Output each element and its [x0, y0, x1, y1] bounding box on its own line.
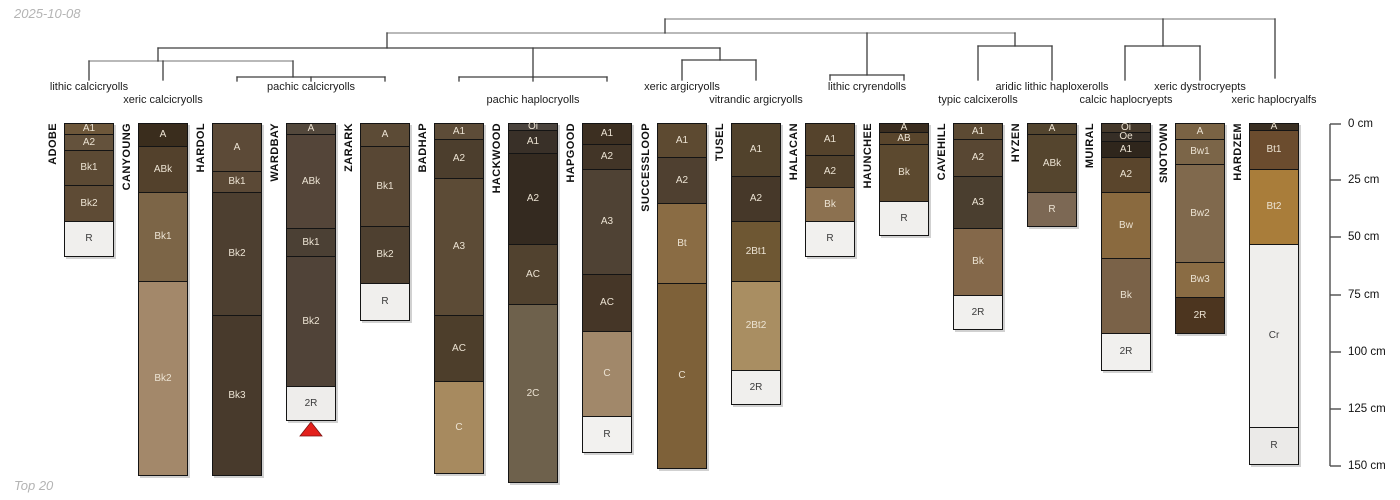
horizon-muiral-bk: Bk [1101, 258, 1151, 334]
horizon-cavehill-bk: Bk [953, 228, 1003, 296]
horizon-halacan-a2: A2 [805, 155, 855, 188]
profile-column-wardbay: AABkBk1Bk22R [286, 123, 336, 421]
taxon-label: vitrandic argicryolls [641, 94, 871, 106]
horizon-wardbay-bk2: Bk2 [286, 256, 336, 387]
profile-column-canyoung: AABkBk1Bk2 [138, 123, 188, 476]
horizon-halacan-r: R [805, 221, 855, 257]
horizon-wardbay-bk1: Bk1 [286, 228, 336, 257]
profile-name-halacan: HALACAN [787, 123, 802, 180]
profile-name-hardzem: HARDZEM [1231, 123, 1246, 181]
taxon-label: xeric dystrocryepts [1085, 81, 1315, 93]
horizon-muiral-2r: 2R [1101, 333, 1151, 371]
horizon-badhap-ac: AC [434, 315, 484, 382]
horizon-muiral-a1: A1 [1101, 141, 1151, 158]
profile-column-snotown: ABw1Bw2Bw32R [1175, 123, 1225, 334]
profile-name-wardbay: WARDBAY [268, 123, 283, 182]
horizon-hackwood-ac: AC [508, 244, 558, 305]
soil-profile-dendrogram-figure: 2025-10-08 Top 20 lithic calcicryollsxer… [0, 0, 1400, 500]
depth-axis-label: 75 cm [1348, 289, 1379, 301]
profile-name-successloop: SUCCESSLOOP [639, 123, 654, 212]
horizon-hackwood-2c: 2C [508, 304, 558, 483]
horizon-hapgood-a3: A3 [582, 169, 632, 275]
profile-name-badhap: BADHAP [416, 123, 431, 172]
horizon-cavehill-2r: 2R [953, 295, 1003, 330]
horizon-badhap-a1: A1 [434, 123, 484, 140]
horizon-successloop-bt: Bt [657, 203, 707, 284]
horizon-hapgood-a1: A1 [582, 123, 632, 145]
horizon-hapgood-a2: A2 [582, 144, 632, 170]
horizon-hardol-a: A [212, 123, 262, 172]
horizon-adobe-bk2: Bk2 [64, 185, 114, 222]
horizon-badhap-a2: A2 [434, 139, 484, 179]
horizon-tusel-2bt2: 2Bt2 [731, 281, 781, 371]
horizon-hardol-bk1: Bk1 [212, 171, 262, 193]
depth-axis-label: 50 cm [1348, 231, 1379, 243]
profile-column-muiral: OiOeA1A2BwBk2R [1101, 123, 1151, 371]
profile-column-haunchee: AABBkR [879, 123, 929, 236]
horizon-hardzem-bt1: Bt1 [1249, 130, 1299, 170]
profile-column-hardol: ABk1Bk2Bk3 [212, 123, 262, 476]
date-label: 2025-10-08 [14, 6, 81, 21]
horizon-adobe-r: R [64, 221, 114, 257]
horizon-snotown-2r: 2R [1175, 297, 1225, 334]
horizon-badhap-a3: A3 [434, 178, 484, 316]
horizon-muiral-a2: A2 [1101, 157, 1151, 193]
taxon-label: pachic calcicryolls [196, 81, 426, 93]
horizon-hardol-bk2: Bk2 [212, 192, 262, 316]
depth-axis-label: 25 cm [1348, 174, 1379, 186]
profile-column-hardzem: ABt1Bt2CrR [1249, 123, 1299, 465]
taxon-label: pachic haplocryolls [418, 94, 648, 106]
horizon-hackwood-a2: A2 [508, 153, 558, 245]
profile-name-haunchee: HAUNCHEE [861, 123, 876, 189]
profile-column-hackwood: OiA1A2AC2C [508, 123, 558, 483]
red-triangle-marker [300, 422, 322, 436]
horizon-tusel-a1: A1 [731, 123, 781, 177]
horizon-haunchee-bk: Bk [879, 144, 929, 202]
horizon-canyoung-a: A [138, 123, 188, 147]
horizon-hapgood-c: C [582, 331, 632, 417]
profile-name-hyzen: HYZEN [1009, 123, 1024, 162]
taxon-label: xeric haplocryalfs [1159, 94, 1389, 106]
profile-column-cavehill: A1A2A3Bk2R [953, 123, 1003, 330]
depth-axis-label: 125 cm [1348, 403, 1386, 415]
horizon-adobe-a2: A2 [64, 134, 114, 151]
horizon-zarark-bk2: Bk2 [360, 226, 410, 284]
horizon-snotown-a: A [1175, 123, 1225, 140]
profile-name-hapgood: HAPGOOD [564, 123, 579, 183]
horizon-canyoung-abk: ABk [138, 146, 188, 193]
horizon-muiral-bw: Bw [1101, 192, 1151, 259]
profile-column-adobe: A1A2Bk1Bk2R [64, 123, 114, 257]
profile-name-canyoung: CANYOUNG [120, 123, 135, 190]
horizon-badhap-c: C [434, 381, 484, 474]
horizon-snotown-bw2: Bw2 [1175, 164, 1225, 263]
horizon-hyzen-r: R [1027, 192, 1077, 227]
horizon-haunchee-r: R [879, 201, 929, 236]
horizon-hardzem-bt2: Bt2 [1249, 169, 1299, 245]
horizon-cavehill-a2: A2 [953, 139, 1003, 177]
horizon-successloop-a2: A2 [657, 157, 707, 204]
horizon-successloop-c: C [657, 283, 707, 469]
profile-column-zarark: ABk1Bk2R [360, 123, 410, 321]
profile-name-hardol: HARDOL [194, 123, 209, 172]
profile-column-hyzen: AABkR [1027, 123, 1077, 227]
taxon-label: lithic calcicryolls [0, 81, 204, 93]
profile-name-muiral: MUIRAL [1083, 123, 1098, 168]
horizon-cavehill-a1: A1 [953, 123, 1003, 140]
horizon-snotown-bw3: Bw3 [1175, 262, 1225, 298]
depth-axis-label: 150 cm [1348, 460, 1386, 472]
horizon-tusel-2r: 2R [731, 370, 781, 405]
horizon-canyoung-bk1: Bk1 [138, 192, 188, 282]
profile-name-snotown: SNOTOWN [1157, 123, 1172, 183]
horizon-hardol-bk3: Bk3 [212, 315, 262, 476]
horizon-zarark-r: R [360, 283, 410, 321]
horizon-halacan-a1: A1 [805, 123, 855, 156]
horizon-wardbay-2r: 2R [286, 386, 336, 421]
horizon-hapgood-ac: AC [582, 274, 632, 332]
horizon-hyzen-abk: ABk [1027, 134, 1077, 193]
horizon-hardzem-cr: Cr [1249, 244, 1299, 428]
depth-axis-label: 0 cm [1348, 118, 1373, 130]
horizon-tusel-2bt1: 2Bt1 [731, 221, 781, 282]
horizon-cavehill-a3: A3 [953, 176, 1003, 229]
horizon-successloop-a1: A1 [657, 123, 707, 158]
horizon-zarark-a: A [360, 123, 410, 147]
profile-name-adobe: ADOBE [46, 123, 61, 165]
horizon-hardzem-r: R [1249, 427, 1299, 465]
profile-column-tusel: A1A22Bt12Bt22R [731, 123, 781, 405]
horizon-zarark-bk1: Bk1 [360, 146, 410, 227]
footer-label: Top 20 [14, 478, 53, 493]
horizon-halacan-bk: Bk [805, 187, 855, 222]
horizon-adobe-bk1: Bk1 [64, 150, 114, 186]
profile-column-hapgood: A1A2A3ACCR [582, 123, 632, 453]
profile-column-halacan: A1A2BkR [805, 123, 855, 257]
profile-column-successloop: A1A2BtC [657, 123, 707, 469]
profile-name-zarark: ZARARK [342, 123, 357, 172]
horizon-hackwood-a1: A1 [508, 130, 558, 154]
depth-axis-label: 100 cm [1348, 346, 1386, 358]
taxon-label: xeric calcicryolls [48, 94, 278, 106]
horizon-hapgood-r: R [582, 416, 632, 453]
horizon-wardbay-abk: ABk [286, 134, 336, 229]
horizon-snotown-bw1: Bw1 [1175, 139, 1225, 165]
profile-name-hackwood: HACKWOOD [490, 123, 505, 193]
horizon-tusel-a2: A2 [731, 176, 781, 222]
profile-name-tusel: TUSEL [713, 123, 728, 161]
profile-name-cavehill: CAVEHILL [935, 123, 950, 180]
profile-column-badhap: A1A2A3ACC [434, 123, 484, 474]
horizon-canyoung-bk2: Bk2 [138, 281, 188, 476]
